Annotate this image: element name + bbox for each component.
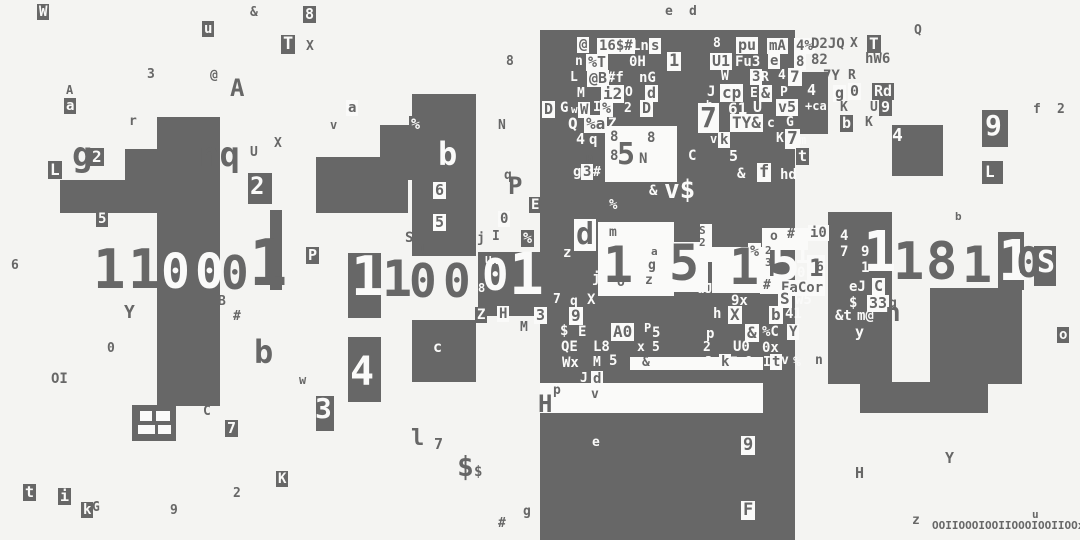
glyph: 3 (534, 307, 547, 324)
glyph: R (848, 69, 856, 82)
glyph: G (92, 501, 100, 514)
glyph: 1 (667, 52, 681, 71)
glyph: z (730, 354, 738, 367)
glyph: $ (474, 465, 482, 479)
glyph: M (593, 356, 601, 369)
glyph: p (706, 327, 714, 341)
glyph: W (37, 4, 49, 20)
glyph: c (767, 117, 775, 130)
glyph: v5 (776, 99, 798, 116)
glyph: 5 (617, 140, 635, 170)
glyph: e (665, 5, 673, 18)
glyph: 9 (879, 99, 892, 116)
glyph: 1 (249, 232, 288, 296)
glyph: K (865, 116, 873, 129)
glyph: Z (475, 307, 487, 323)
glyph: 5 (609, 354, 617, 368)
glyph: 1 (351, 250, 384, 304)
glyph: p (553, 384, 561, 397)
glyph: x (637, 341, 645, 354)
glyph: # (593, 166, 601, 179)
glyph: w5 (795, 293, 812, 307)
glyph: 2 (699, 237, 706, 248)
glyph: n (575, 55, 583, 68)
glyph: P (306, 247, 319, 264)
glyph: 7Y (823, 69, 840, 83)
glyph: D (640, 100, 653, 117)
glyph: b (769, 306, 783, 324)
glyph: Y (945, 451, 954, 466)
glyph: U (870, 101, 878, 114)
glyph: 4 (840, 229, 848, 243)
glyph: 16$# (597, 38, 635, 54)
white-block (138, 425, 155, 434)
glyph: 5 (729, 149, 738, 164)
glyph: M (577, 87, 585, 100)
glyph: 3 (581, 164, 593, 180)
glyph: 4 (576, 132, 585, 147)
glyph: i (58, 488, 71, 505)
glyph: k (718, 132, 730, 148)
glyph: M (520, 321, 528, 334)
glyph: QE (561, 340, 578, 354)
glyph: E (578, 325, 586, 339)
glyph: 2 (1057, 103, 1065, 116)
glyph: U1 (710, 53, 732, 70)
glyph: a (651, 246, 658, 257)
glyph: OI (51, 372, 68, 386)
glyph: Fu3 (735, 55, 760, 69)
glyph: 3 (315, 395, 332, 423)
glyph: b (438, 138, 457, 170)
glyph: E (529, 197, 541, 213)
glyph: Y (787, 324, 799, 340)
glyph: O (625, 86, 633, 99)
glyph: i0 (808, 225, 829, 241)
glyph: U0 (733, 340, 750, 354)
glyph: 5 (652, 326, 660, 340)
glyph: 0 (797, 266, 805, 280)
glyph: v (330, 119, 337, 131)
glyph: 7 (788, 68, 802, 86)
glyph: z (645, 274, 653, 287)
glyph: & (642, 356, 650, 369)
glyph: h (713, 307, 721, 321)
glyph: X (728, 306, 742, 324)
white-block (156, 411, 170, 421)
glyph: TY& (730, 114, 763, 132)
glyph: X (850, 37, 858, 50)
glyph: 0 (848, 83, 861, 100)
glyph: 7 (225, 420, 238, 437)
glyph: 9 (745, 356, 753, 369)
glyph: 2 (233, 487, 241, 500)
glyph: 0 (409, 258, 437, 304)
glyph: v (710, 133, 717, 145)
glyph: hW6 (865, 52, 890, 66)
glyph: v (781, 354, 789, 367)
glyph: $ (560, 324, 568, 338)
glyph: 8 (645, 130, 657, 146)
glyph: a (346, 100, 358, 116)
glyph: b (254, 336, 273, 368)
glyph: n (885, 300, 901, 326)
glyph: j (592, 271, 600, 285)
glyph: 1 (128, 243, 161, 297)
glyph: &t (835, 309, 852, 323)
glyph: 4 (778, 69, 786, 82)
white-block (540, 383, 763, 413)
glyph: r (129, 115, 137, 128)
glyph: 7 (840, 245, 848, 259)
glyph: eJ (849, 280, 866, 294)
glyph: nq (199, 138, 240, 172)
glyph: J (707, 85, 715, 99)
glyph: K (840, 101, 848, 114)
glyph: 8 (926, 236, 957, 288)
glyph: C (688, 149, 696, 163)
glyph: T (281, 35, 295, 54)
glyph: OOIIOOOIOOIIOOOIOOIIOOxOOIIOIIO (932, 520, 1080, 531)
glyph: 2 (624, 102, 632, 115)
glyph: m@ (857, 309, 874, 323)
glyph: j (477, 232, 485, 245)
glyph: # (498, 517, 506, 530)
glyph: H (497, 306, 509, 322)
glyph: 6 (816, 261, 824, 274)
glyph: N (639, 152, 647, 166)
glyph: L8 (593, 340, 610, 354)
glyph: N (498, 119, 506, 132)
glyph: d (591, 371, 603, 387)
glyph: b (955, 211, 962, 222)
white-block (140, 411, 152, 421)
glyph: g (523, 505, 531, 518)
glyph: o (1057, 327, 1069, 343)
glyph: 5 (669, 238, 699, 288)
glyph: C (203, 405, 211, 418)
glyph: s (649, 38, 661, 54)
glyph: #f (607, 71, 624, 85)
glyph: u (202, 21, 214, 37)
glyph: 2 (90, 148, 104, 166)
glyph: $ (457, 453, 474, 481)
glyph: P (508, 174, 522, 198)
glyph: v$ (664, 177, 695, 203)
glyph: K (776, 132, 784, 145)
glyph: 7 (785, 129, 800, 149)
glyph: 2 (705, 356, 713, 369)
glyph: 2 (250, 174, 264, 198)
glyph: 5 (433, 214, 446, 231)
glyph: 9 (170, 504, 178, 517)
glyph: nG (639, 71, 656, 85)
glyph: J (580, 372, 588, 385)
glyph: 9 (985, 112, 1002, 140)
glyph: e (768, 53, 780, 69)
glyph: H (538, 392, 552, 416)
glyph: d (689, 5, 697, 18)
glyph: w (299, 374, 306, 386)
glyph: %a (584, 115, 607, 133)
glyph: 0 (107, 342, 115, 355)
glyph: H (855, 466, 864, 481)
glyph: X (274, 137, 282, 150)
glyph: v (591, 388, 599, 401)
glyph: n (815, 354, 823, 367)
glyph: L (983, 163, 997, 181)
glyph: 2 (703, 341, 711, 354)
gray-block (412, 320, 476, 382)
glyph: 1 (962, 240, 992, 290)
glyph: U (250, 146, 258, 159)
glyph: D2JQ (811, 37, 845, 51)
glyph: 9 (861, 245, 869, 259)
glyph: # (233, 310, 241, 323)
glyph: o (617, 276, 625, 289)
glyph: 3 (147, 68, 155, 81)
glyph: pu (736, 37, 758, 54)
glyph: m (799, 134, 806, 146)
glyph: l (411, 428, 424, 450)
glyph: t (796, 148, 809, 165)
glyph: z (912, 514, 920, 527)
glyph: X (306, 40, 314, 53)
glyph: 82 (811, 53, 828, 67)
glyph: f (757, 163, 771, 182)
glyph: & (649, 184, 657, 198)
glyph: I (492, 230, 500, 243)
glyph: z (563, 246, 571, 260)
glyph: hd (780, 168, 797, 182)
glyph: 1 (893, 236, 924, 288)
glyph: Q (914, 24, 922, 37)
glyph: 4 (350, 352, 374, 392)
glyph: A (66, 84, 73, 96)
glyph: 0 (195, 248, 224, 296)
glyph: 6 (433, 182, 446, 199)
glyph: b (840, 115, 853, 132)
white-block (158, 425, 171, 434)
glyph: 1 (861, 261, 869, 275)
glyph: S (699, 225, 706, 236)
glyph: % (609, 198, 617, 212)
glyph: 1 (382, 254, 412, 304)
glyph: K (276, 471, 288, 487)
glyph: Wx (562, 356, 579, 370)
glyph: ou (705, 249, 719, 261)
gray-block (316, 157, 408, 213)
glyph: 8 (303, 6, 316, 23)
glyph: L (570, 71, 578, 84)
glyph: %C (762, 325, 779, 339)
glyph: R (761, 71, 769, 84)
glyph: W (721, 70, 729, 83)
glyph: A (230, 76, 244, 100)
gray-block (60, 180, 158, 213)
glyph: L (48, 161, 62, 179)
glyph: # (763, 279, 771, 292)
glyph: 0H (629, 55, 646, 69)
glyph: A0 (611, 323, 634, 341)
glyph: 5 (652, 341, 660, 354)
glyph: 5 (96, 211, 108, 227)
glyph: G (560, 101, 568, 115)
glyph: Ln (632, 39, 649, 53)
gray-block (860, 382, 988, 413)
glyph: t (23, 484, 36, 501)
glyph: @ (210, 69, 218, 82)
glyph: 1 (93, 243, 126, 297)
glyph: 6 (11, 259, 19, 272)
gray-block (958, 357, 1021, 384)
glitch-art-canvas: W&u3@AAarg2nqUL652YB#0OIbwC7tikG928TX8av… (0, 0, 1080, 540)
glyph: F (741, 501, 755, 520)
glyph: uJ (697, 283, 713, 296)
glyph: g (648, 259, 656, 272)
glyph: 41 (785, 307, 802, 321)
glyph: 9 (569, 307, 583, 325)
glyph: 1 (509, 245, 544, 303)
glyph: Y (124, 304, 135, 322)
glyph: @ (577, 37, 589, 53)
glyph: & (250, 6, 258, 19)
glyph: mA (767, 38, 788, 54)
glyph: e (592, 436, 600, 449)
glyph: y (855, 325, 864, 340)
glyph: 4 (892, 127, 903, 145)
glyph: 7 (434, 437, 443, 452)
glyph: S (1037, 248, 1055, 278)
glyph: 8 (506, 55, 514, 68)
glyph: 7 (553, 293, 561, 306)
glyph: P (644, 322, 651, 334)
glyph: 9 (741, 436, 755, 455)
glyph: 4 (807, 83, 816, 98)
glyph: D (542, 101, 555, 118)
glyph: f (1033, 103, 1041, 116)
glyph: 8 (713, 37, 721, 50)
glyph: 0 (161, 248, 190, 296)
glyph: 0 (498, 211, 510, 227)
glyph: 0x (762, 341, 779, 355)
glyph: S (405, 231, 413, 245)
glyph: +ca (805, 100, 827, 112)
glyph: d (574, 219, 596, 251)
glyph: q (589, 133, 597, 147)
glyph: 0 (221, 250, 249, 296)
glyph: & (737, 167, 745, 181)
glyph: X (587, 293, 595, 307)
glyph: 7 (698, 103, 719, 133)
glyph: 0 (482, 254, 509, 298)
glyph: 0 (443, 258, 471, 304)
glyph: a (64, 98, 76, 114)
glyph: C (872, 278, 885, 295)
glyph: % (409, 116, 422, 133)
glyph: % (793, 356, 801, 369)
glyph: c (433, 340, 442, 355)
